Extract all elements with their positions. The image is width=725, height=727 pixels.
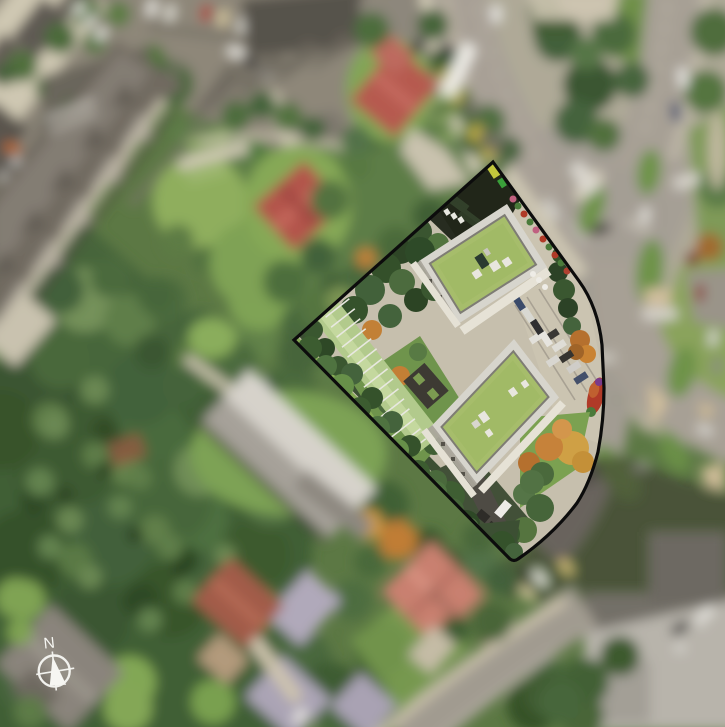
- svg-text:N: N: [43, 635, 56, 653]
